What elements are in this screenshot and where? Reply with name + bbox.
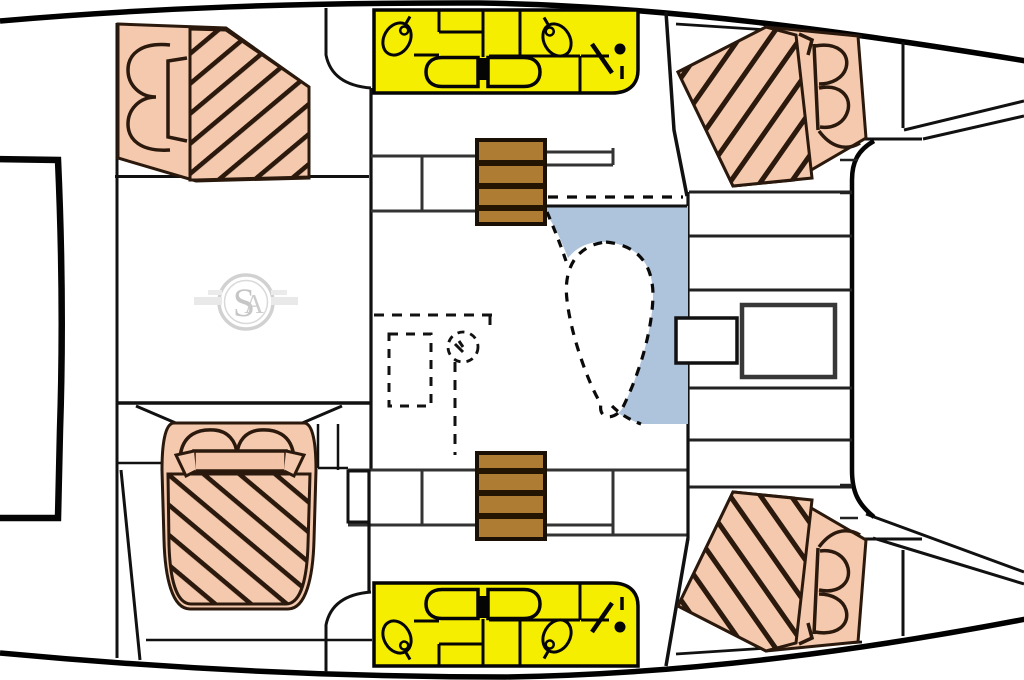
svg-text:A: A (244, 289, 264, 319)
